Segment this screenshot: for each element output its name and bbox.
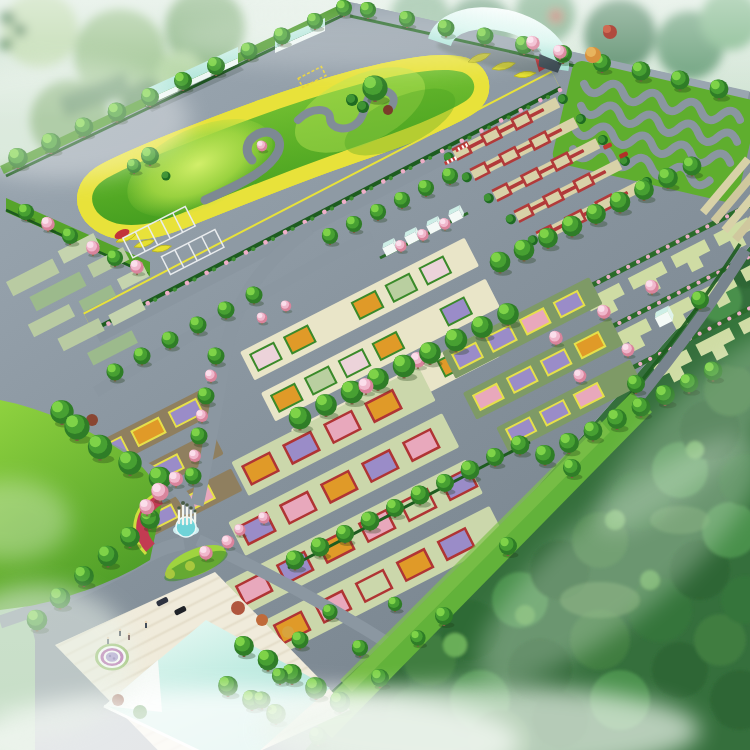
aerial-rendering-canvas xyxy=(0,0,750,750)
site-plan-rendering xyxy=(0,0,750,750)
